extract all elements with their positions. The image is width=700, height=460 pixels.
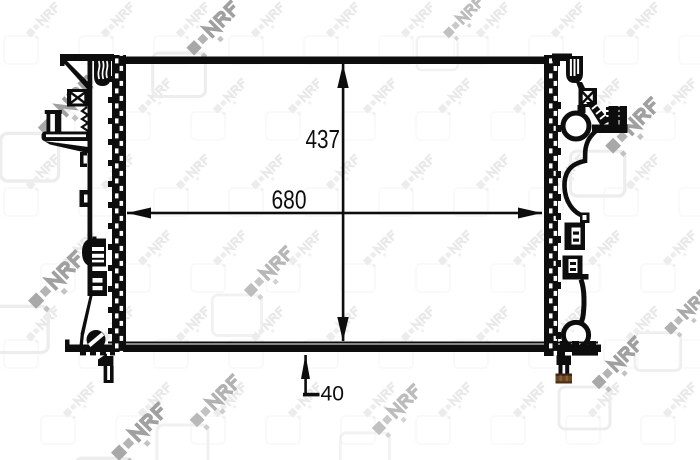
svg-text:40: 40 <box>321 383 345 406</box>
svg-text:437: 437 <box>306 124 341 154</box>
svg-text:680: 680 <box>272 185 307 215</box>
